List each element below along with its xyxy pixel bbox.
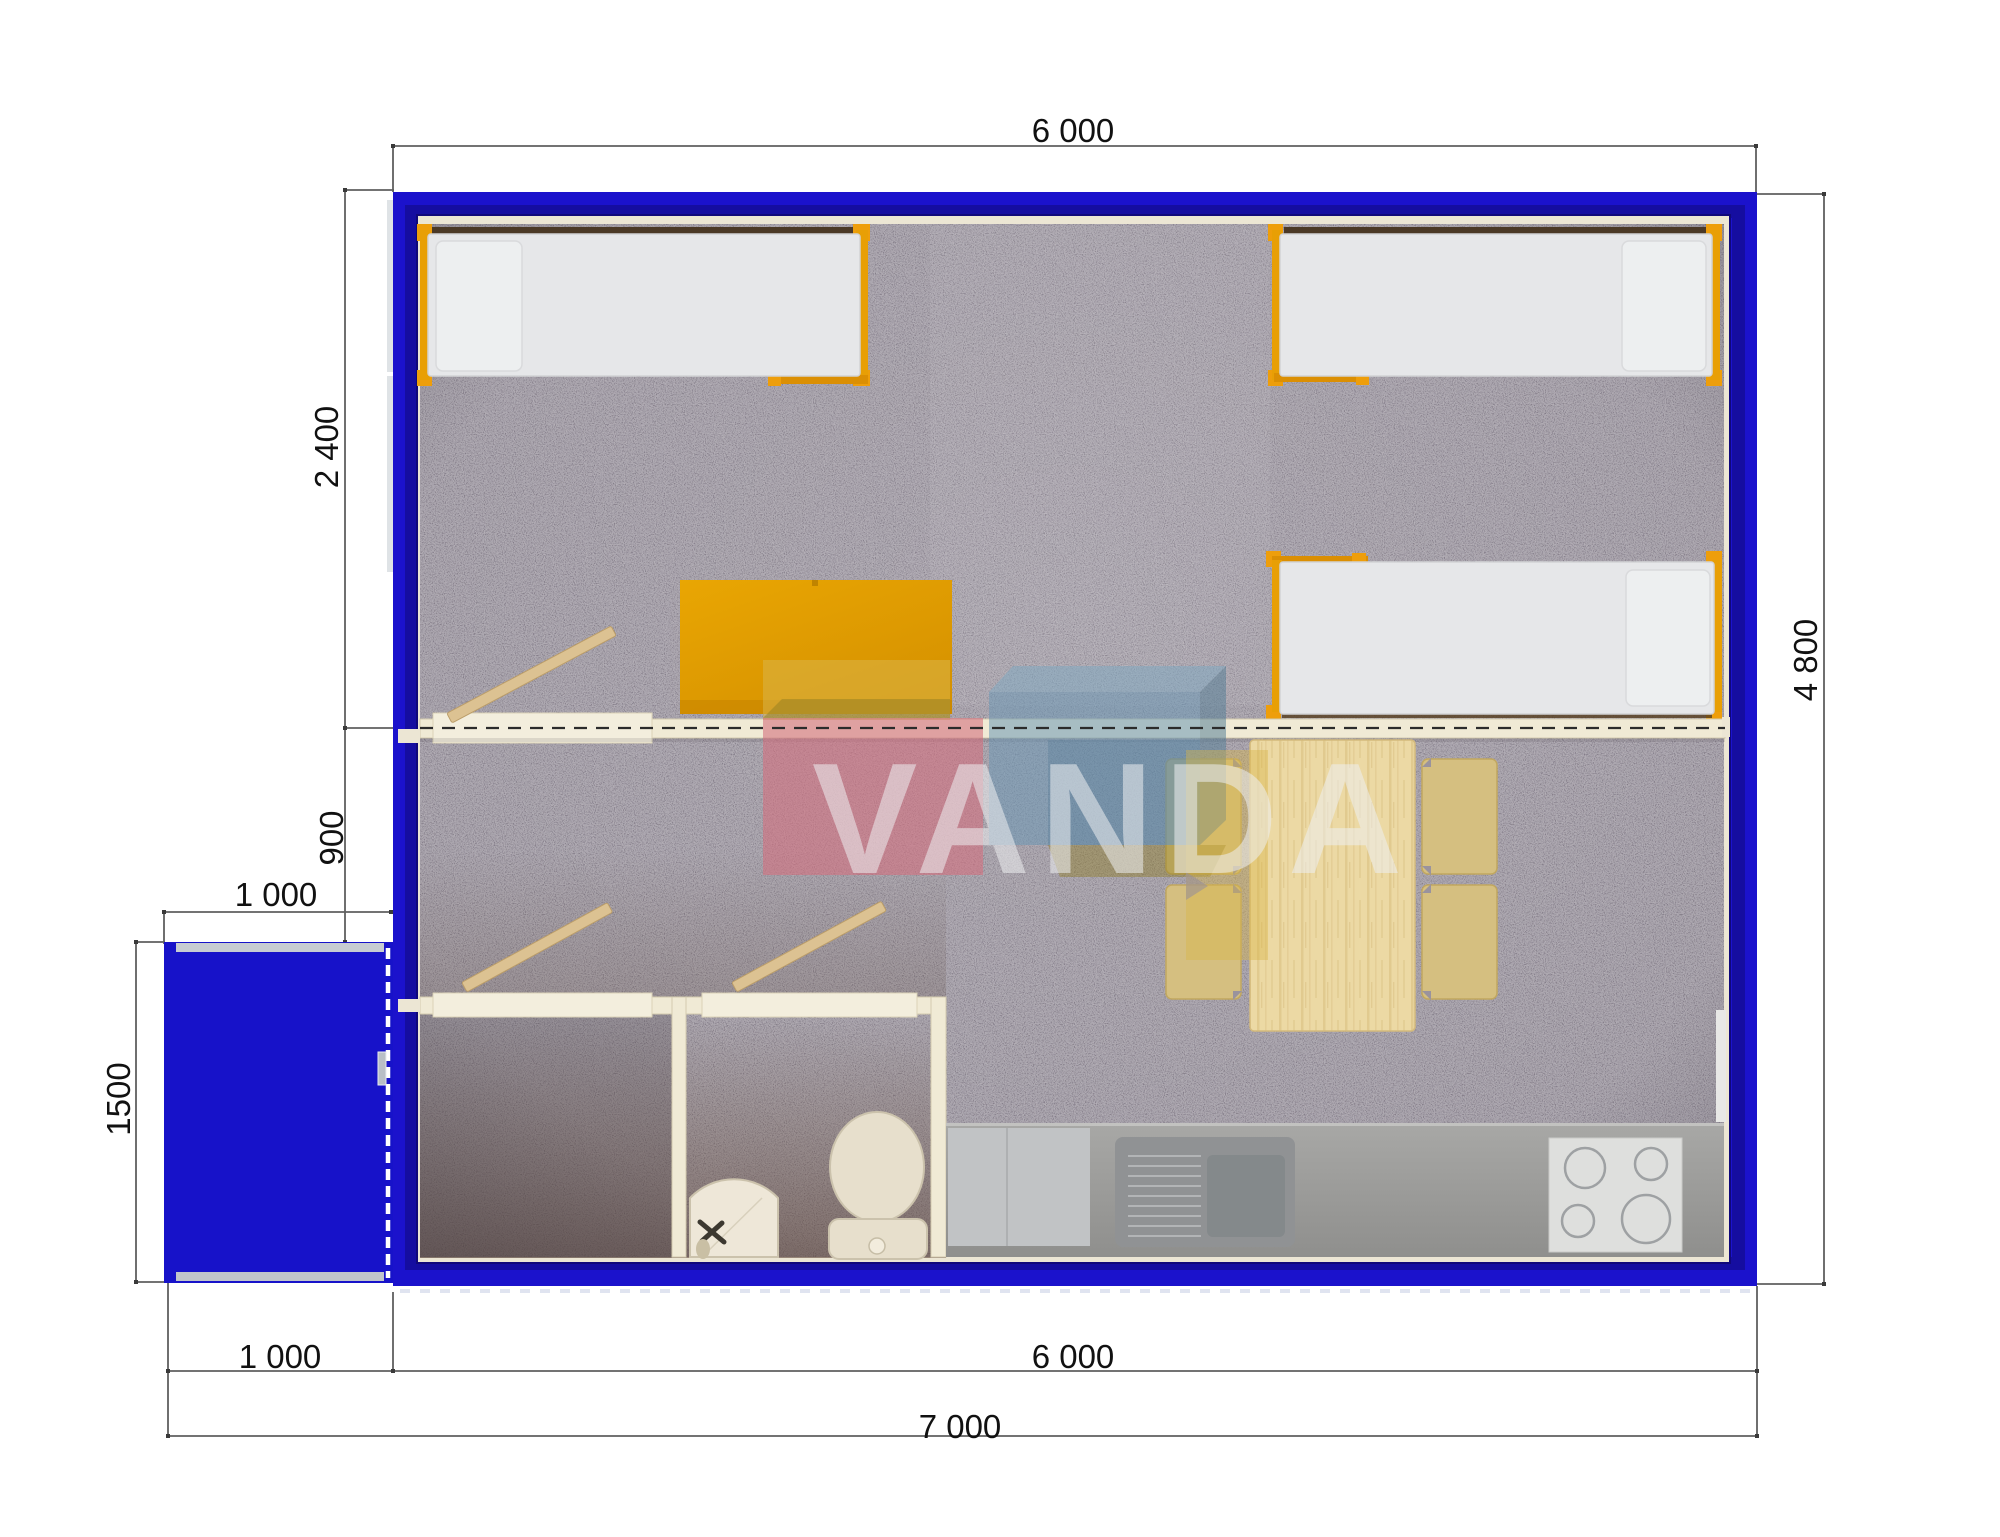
- svg-text:6 000: 6 000: [1032, 1338, 1115, 1375]
- svg-text:VANDA: VANDA: [812, 731, 1412, 907]
- svg-text:4 800: 4 800: [1787, 619, 1824, 702]
- svg-text:6 000: 6 000: [1032, 112, 1115, 149]
- svg-text:1 000: 1 000: [235, 876, 318, 913]
- svg-text:2 400: 2 400: [308, 406, 345, 489]
- svg-text:900: 900: [313, 810, 350, 865]
- svg-text:7 000: 7 000: [919, 1408, 1002, 1445]
- svg-text:1500: 1500: [100, 1062, 137, 1135]
- svg-text:1 000: 1 000: [239, 1338, 322, 1375]
